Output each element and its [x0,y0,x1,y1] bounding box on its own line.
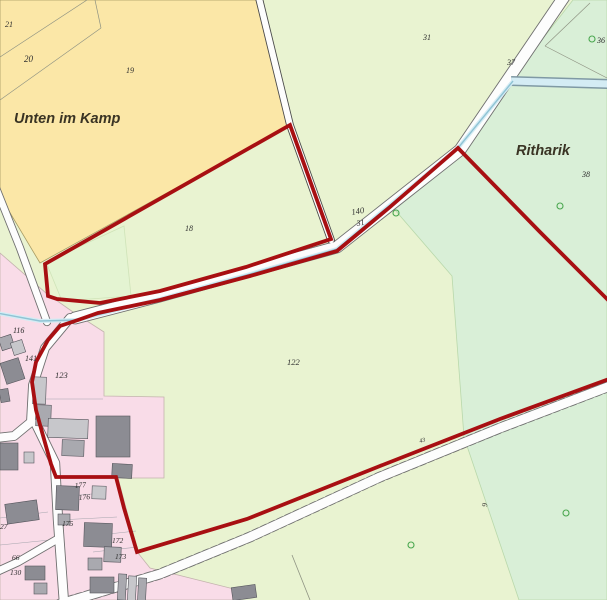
building [90,577,114,593]
building [92,486,106,499]
stream-band [511,81,607,84]
parcel-number-label: 173 [115,552,127,561]
map-viewport[interactable]: 212019Unten im Kamp313736Ritharik3814031… [0,0,607,600]
parcel-number-label: 116 [13,326,24,335]
parcel-number-label: 122 [287,357,301,367]
parcel-number-label: 31 [422,33,431,42]
building [24,452,34,463]
parcel-number-label: 37 [506,58,516,67]
building [96,416,130,457]
building [137,578,146,600]
parcel-number-label: 36 [596,36,605,45]
parcel-number-label: 176 [78,492,90,502]
parcel-number-label: 38 [581,170,590,179]
parcel-number-label: 20 [24,54,34,64]
parcel-number-label: 141 [25,354,37,363]
parcel-number-label: 175 [62,519,74,528]
building [48,418,89,438]
parcel-number-label: 130 [10,568,22,577]
parcel-number-label: 27 [0,522,8,531]
building [127,576,136,600]
parcel-number-label: 66 [12,553,20,562]
building [88,558,102,570]
building [25,566,45,580]
place-name-label: Ritharik [516,143,571,159]
parcel-number-label: 172 [112,536,124,545]
parcel-number-label: 31 [355,218,365,228]
building [62,440,85,457]
building [84,523,113,548]
parcel-number-label: 123 [55,370,68,380]
place-name-label: Unten im Kamp [14,111,120,127]
building [117,574,126,600]
map-canvas[interactable]: 212019Unten im Kamp313736Ritharik3814031… [0,0,607,600]
parcel-number-label: 177 [74,480,86,490]
building [34,583,47,594]
parcel-number-label: 21 [5,20,13,29]
building [5,500,39,524]
parcel-number-label: 18 [185,224,193,233]
parcel-number-label: 19 [126,66,134,75]
building [0,443,18,470]
